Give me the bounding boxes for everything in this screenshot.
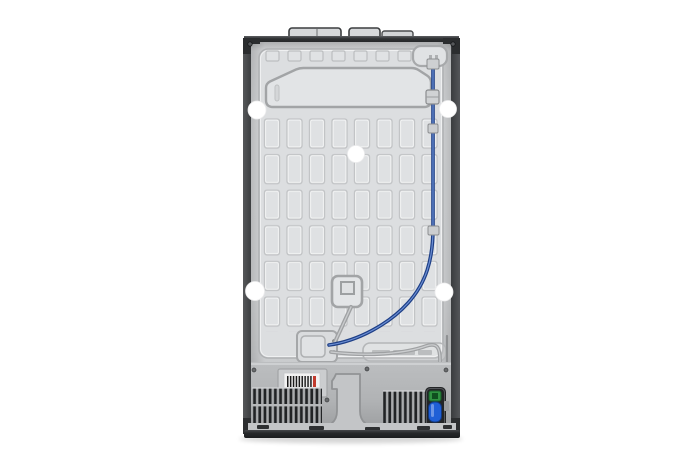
valve-side-bracket [444,401,449,411]
product-photo-canvas [0,0,700,465]
barcode-bars [287,376,312,387]
embossed-square [398,51,411,61]
barcode-red-mark [313,376,316,387]
mounting-hole [348,146,365,163]
embossed-trapezoid [266,68,431,107]
side-rail-left [243,38,252,434]
vent-grille-left [252,388,322,425]
mounting-hole [246,282,265,301]
base-clip [257,425,269,429]
screw [325,398,329,402]
junction-plate-inner [301,336,325,357]
water-inlet-valve [425,387,449,429]
trapezoid-slot [275,85,279,101]
tube-clip [427,59,439,69]
vent-grille-right [383,391,432,425]
embossed-square [310,51,323,61]
screw [365,367,369,371]
page: { "colors": { "background": "#ffffff", "… [0,0,700,465]
embossed-square-row [266,51,411,61]
embossed-numeral-stamp [332,374,365,427]
bracket-screw [248,42,252,46]
embossed-square [332,51,345,61]
grille-slats [383,391,432,425]
center-pad-inner-square [341,282,354,294]
embossed-square [376,51,389,61]
grille-slats [252,388,322,425]
grille-mid-band [252,404,322,406]
side-rail-right [451,38,460,434]
mounting-hole [248,101,266,119]
tube-clip [428,124,438,133]
base-bar [244,430,460,438]
valve-green-port [432,393,438,399]
base-clip [443,425,452,429]
mounting-hole [435,283,453,301]
embossed-square [266,51,279,61]
base-clip [417,426,430,430]
tube-clip [428,226,439,235]
embossed-square [354,51,367,61]
base-clip [309,426,324,430]
mounting-hole [440,101,457,118]
bracket-screw [451,42,455,46]
center-square-pad [332,276,362,307]
embossed-square [288,51,301,61]
screw [444,368,448,372]
refrigerator-back-view [0,0,700,465]
valve-blue-highlight [431,404,434,417]
valve-blue-body [429,402,442,422]
screw [252,368,256,372]
